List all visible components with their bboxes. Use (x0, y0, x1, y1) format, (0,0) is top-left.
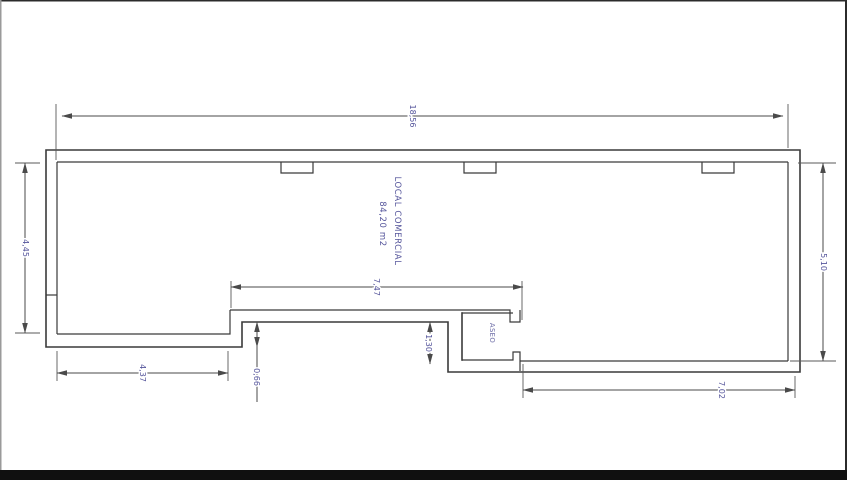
dimension-recess-depth-label: 1,30 (424, 334, 433, 352)
room-area-label: 84,20 m2 (377, 201, 387, 247)
dimension-bottom-left-label: 4,37 (138, 364, 147, 382)
frame-bottom-bar (0, 470, 847, 480)
paper-background (0, 0, 847, 480)
dimension-recess-width-label: 7,47 (372, 278, 381, 296)
aseo-room-label: ASEO (488, 323, 496, 343)
frame-left-line (0, 0, 2, 471)
dimension-bottom-right-label: 7,02 (717, 381, 726, 399)
floorplan-canvas: 18,56 4,45 5,10 7,47 4,37 0,66 1,30 7,02… (0, 0, 847, 480)
frame-top-line (0, 0, 847, 2)
dimension-step-label: 0,66 (252, 368, 261, 386)
dimension-top-label: 18,56 (408, 105, 417, 128)
dimension-right-label: 5,10 (819, 253, 828, 271)
room-title-label: LOCAL COMERCIAL (392, 176, 402, 265)
dimension-left-label: 4,45 (21, 239, 30, 257)
